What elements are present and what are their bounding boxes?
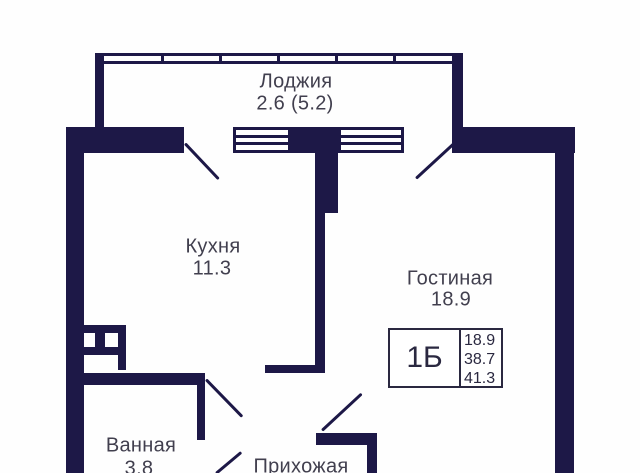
kitchen-label: Кухня xyxy=(185,236,240,259)
window-symbol-kitchen xyxy=(233,127,291,153)
glazing-mullion xyxy=(393,56,396,61)
shaft-right-edge xyxy=(118,325,126,370)
living-area: 18.9 xyxy=(431,289,471,312)
glazing-mullion xyxy=(277,56,280,61)
glazing-mullion xyxy=(161,56,164,61)
wall-kitchen-top xyxy=(66,127,184,153)
wall-loggia-left xyxy=(95,53,104,128)
wall-hallway-top xyxy=(316,433,377,445)
wall-bathroom-right xyxy=(197,385,205,440)
door-swing-bathroom xyxy=(215,451,242,473)
floor-plan: Лоджия 2.6 (5.2) Кухня 11.3 Гостиная 18.… xyxy=(0,0,640,473)
legend-living-area: 18.9 xyxy=(464,331,501,350)
window-symbol-living xyxy=(338,127,404,153)
bathroom-label: Ванная xyxy=(106,435,176,458)
wall-hallway-vertical xyxy=(367,445,377,473)
kitchen-area: 11.3 xyxy=(193,258,232,281)
wall-living-top xyxy=(463,127,575,153)
hallway-label: Прихожая xyxy=(253,456,348,473)
glazing-mullion xyxy=(335,56,338,61)
door-swing-loggia-kitchen xyxy=(184,142,220,180)
wall-kitchen-bottom xyxy=(265,365,325,373)
wall-loggia-right xyxy=(452,53,463,153)
glazing-mullion xyxy=(219,56,222,61)
window-pane-line xyxy=(341,135,401,138)
legend-total-area: 41.3 xyxy=(464,369,501,388)
door-swing-kitchen xyxy=(205,378,243,417)
wall-kitchen-living-partition xyxy=(315,213,325,373)
living-label: Гостиная xyxy=(407,268,493,291)
legend-area: 38.7 xyxy=(464,350,501,369)
wall-outer-right xyxy=(555,153,574,473)
door-swing-loggia-living xyxy=(415,140,458,179)
wall-outer-left xyxy=(66,153,84,473)
apartment-type: 1Б xyxy=(390,330,459,386)
shaft-divider xyxy=(95,333,105,348)
door-swing-living xyxy=(321,393,363,432)
window-pane-line xyxy=(341,142,401,145)
bathroom-area: 3.8 xyxy=(125,458,154,473)
apartment-legend-box: 1Б 18.9 38.7 41.3 xyxy=(388,328,503,388)
loggia-label: Лоджия xyxy=(260,71,333,94)
window-pane-line xyxy=(236,142,288,145)
apartment-areas: 18.9 38.7 41.3 xyxy=(459,330,501,386)
loggia-glazing-band xyxy=(95,53,463,64)
window-pane-line xyxy=(236,135,288,138)
loggia-area: 2.6 (5.2) xyxy=(256,93,333,116)
wall-bathroom-top xyxy=(84,373,205,385)
wall-partition-stub xyxy=(315,127,338,213)
